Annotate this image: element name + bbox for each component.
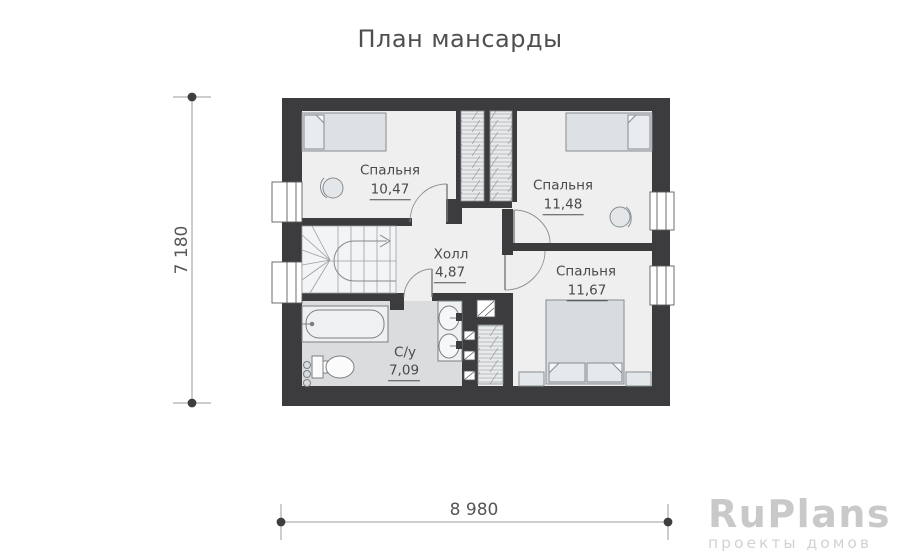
window xyxy=(650,192,674,230)
bed-single xyxy=(302,113,386,151)
room-label-bedroom-1: Спальня xyxy=(360,164,420,178)
wardrobe xyxy=(490,111,512,201)
window xyxy=(272,262,302,303)
wardrobe xyxy=(461,111,484,201)
watermark: RuPlans проекты домов xyxy=(708,495,891,552)
watermark-brand: RuPlans xyxy=(708,495,891,533)
sinks xyxy=(438,301,462,361)
dimension-height-label: 7 180 xyxy=(172,215,190,285)
room-label-bedroom-3: Спальня xyxy=(556,265,616,279)
room-label-bedroom-2: Спальня xyxy=(533,179,593,193)
room-area-bedroom-2: 11,48 xyxy=(543,198,584,212)
bed-single xyxy=(566,113,652,151)
dimension-width-label: 8 980 xyxy=(424,500,524,520)
room-label-bathroom: С/у xyxy=(394,346,416,360)
room-label-hall: Холл xyxy=(434,248,469,262)
stairs xyxy=(302,226,396,293)
window xyxy=(272,182,302,222)
page: План мансарды xyxy=(0,0,920,560)
window xyxy=(650,266,674,305)
room-area-hall: 4,87 xyxy=(434,266,466,280)
wardrobe xyxy=(478,325,503,384)
room-area-bedroom-3: 11,67 xyxy=(567,284,608,298)
room-area-bathroom: 7,09 xyxy=(388,364,420,378)
nightstand xyxy=(626,372,651,386)
toilet xyxy=(312,356,354,378)
room-area-bedroom-1: 10,47 xyxy=(370,183,411,197)
watermark-tagline: проекты домов xyxy=(708,536,891,552)
nightstand xyxy=(519,372,544,386)
bathtub xyxy=(302,306,388,342)
